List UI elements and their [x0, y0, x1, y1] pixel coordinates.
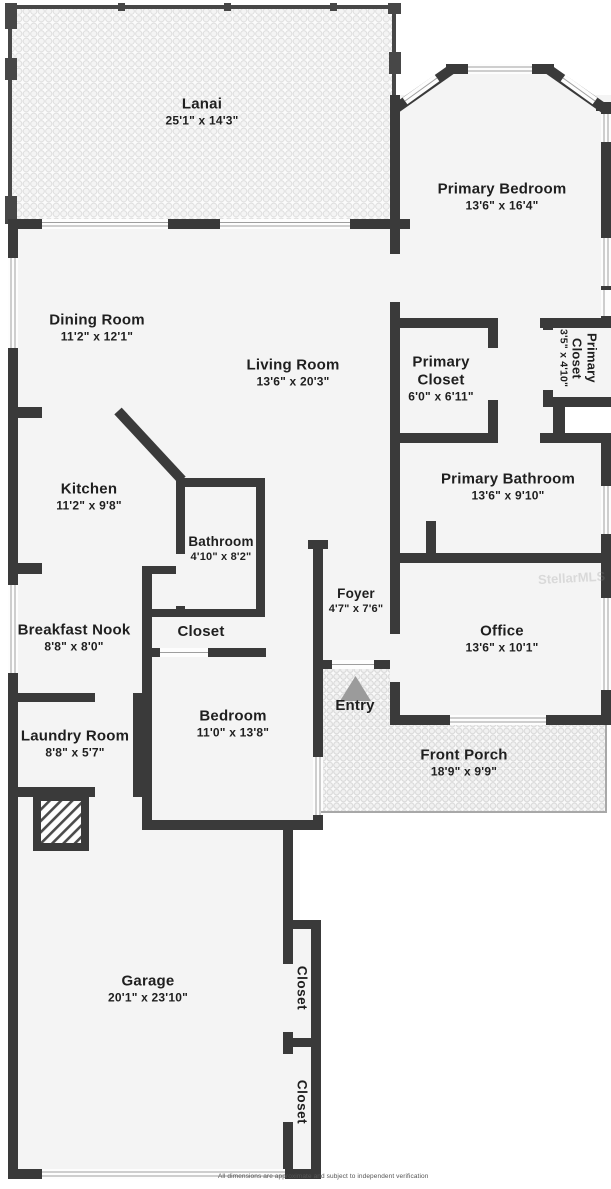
- room-fills: [8, 68, 611, 1179]
- floor-plan-drawing: [0, 0, 611, 1189]
- lanai-texture: [12, 9, 392, 219]
- floor-plan: Lanai 25'1" x 14'3" Primary Bedroom 13'6…: [0, 0, 611, 1189]
- utility-hatch: [33, 793, 89, 851]
